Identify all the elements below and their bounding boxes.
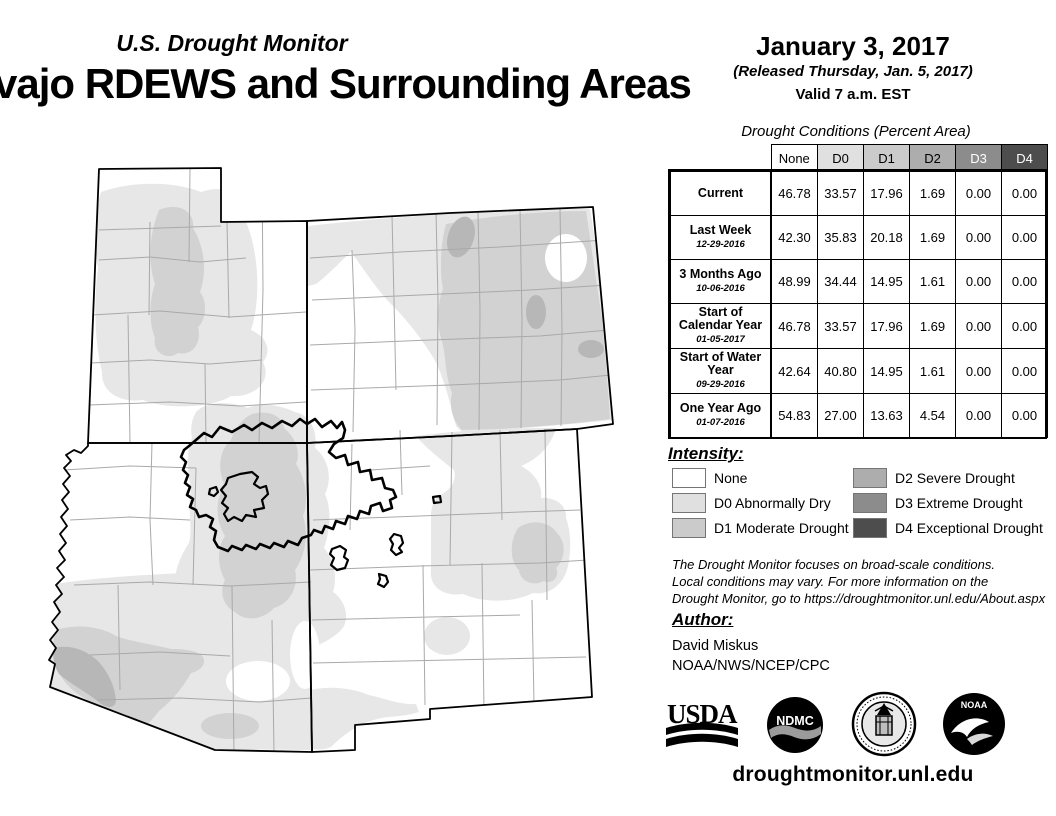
row-label: 3 Months Ago10-06-2016: [671, 260, 772, 304]
cell-value: 46.78: [771, 172, 818, 216]
none-hole-arizona-1: [226, 661, 290, 701]
table-row: Start of Calendar Year01-05-2017 46.78 3…: [671, 304, 1048, 349]
drought-monitor-page: U.S. Drought Monitor vajo RDEWS and Surr…: [0, 0, 1056, 816]
col-header-none: None: [771, 145, 818, 172]
cell-value: 14.95: [864, 349, 910, 394]
col-header-d3: D3: [956, 145, 1002, 172]
cell-value: 0.00: [1002, 172, 1048, 216]
legend-swatch-d3: [853, 493, 887, 513]
table-row: 3 Months Ago10-06-2016 48.99 34.44 14.95…: [671, 260, 1048, 304]
cell-value: 17.96: [864, 172, 910, 216]
author-org: NOAA/NWS/NCEP/CPC: [672, 658, 830, 674]
usda-logo: USDA: [666, 700, 738, 754]
cell-value: 20.18: [864, 216, 910, 260]
table-title: Drought Conditions (Percent Area): [672, 123, 1040, 140]
col-header-d0: D0: [818, 145, 864, 172]
table-header-row: None D0 D1 D2 D3 D4: [671, 145, 1048, 172]
d0-area-new-mexico-south: [424, 617, 470, 655]
page-title: vajo RDEWS and Surrounding Areas: [0, 60, 691, 108]
row-label: One Year Ago01-07-2016: [671, 394, 772, 438]
cell-value: 42.30: [771, 216, 818, 260]
col-header-d4: D4: [1002, 145, 1048, 172]
d0-area-bootheel: [298, 688, 419, 750]
cell-value: 4.54: [910, 394, 956, 438]
cell-value: 1.61: [910, 349, 956, 394]
cell-value: 1.69: [910, 304, 956, 349]
legend-item-d2: D2 Severe Drought: [853, 468, 1015, 488]
site-url: droughtmonitor.unl.edu: [672, 763, 1034, 787]
cell-value: 34.44: [818, 260, 864, 304]
legend-item-d1: D1 Moderate Drought: [672, 518, 849, 538]
valid-time: Valid 7 a.m. EST: [718, 86, 988, 103]
cell-value: 17.96: [864, 304, 910, 349]
cell-value: 40.80: [818, 349, 864, 394]
cell-value: 0.00: [1002, 216, 1048, 260]
legend-item-d3: D3 Extreme Drought: [853, 493, 1023, 513]
cell-value: 0.00: [956, 216, 1002, 260]
cell-value: 35.83: [818, 216, 864, 260]
drought-map: [28, 133, 676, 799]
cell-value: 13.63: [864, 394, 910, 438]
ndmc-logo: NDMC: [766, 696, 824, 754]
disclaimer-text: The Drought Monitor focuses on broad-sca…: [672, 556, 1056, 607]
table-row: Start of Water Year09-29-2016 42.64 40.8…: [671, 349, 1048, 394]
cell-value: 1.69: [910, 172, 956, 216]
table-row: Last Week12-29-2016 42.30 35.83 20.18 1.…: [671, 216, 1048, 260]
d2-area-colorado-center: [526, 295, 546, 329]
legend-swatch-d2: [853, 468, 887, 488]
cell-value: 0.00: [1002, 304, 1048, 349]
svg-text:NOAA: NOAA: [961, 700, 988, 710]
none-hole-arizona-2: [290, 621, 320, 689]
conditions-table: None D0 D1 D2 D3 D4 Current 46.78 33.57 …: [670, 144, 1048, 438]
legend-item-none: None: [672, 468, 747, 488]
cell-value: 33.57: [818, 172, 864, 216]
table-row: One Year Ago01-07-2016 54.83 27.00 13.63…: [671, 394, 1048, 438]
cell-value: 0.00: [956, 304, 1002, 349]
cell-value: 48.99: [771, 260, 818, 304]
cell-value: 54.83: [771, 394, 818, 438]
app-title: U.S. Drought Monitor: [0, 30, 464, 57]
legend-swatch-d0: [672, 493, 706, 513]
author-name: David Miskus: [672, 638, 758, 654]
svg-text:NDMC: NDMC: [776, 714, 814, 728]
cell-value: 27.00: [818, 394, 864, 438]
table-corner-cell: [671, 145, 772, 172]
released-date: (Released Thursday, Jan. 5, 2017): [700, 63, 1006, 80]
cell-value: 0.00: [956, 260, 1002, 304]
legend-item-d0: D0 Abnormally Dry: [672, 493, 831, 513]
col-header-d1: D1: [864, 145, 910, 172]
cell-value: 0.00: [1002, 260, 1048, 304]
legend-swatch-d4: [853, 518, 887, 538]
cell-value: 0.00: [956, 394, 1002, 438]
cell-value: 0.00: [1002, 349, 1048, 394]
table-row: Current 46.78 33.57 17.96 1.69 0.00 0.00: [671, 172, 1048, 216]
cell-value: 46.78: [771, 304, 818, 349]
legend-swatch-d1: [672, 518, 706, 538]
row-label: Start of Water Year09-29-2016: [671, 349, 772, 394]
cell-value: 1.61: [910, 260, 956, 304]
cell-value: 0.00: [1002, 394, 1048, 438]
d2-area-colorado-east: [578, 340, 604, 358]
legend-title: Intensity:: [668, 444, 744, 464]
row-label: Current: [671, 172, 772, 216]
d1-area-arizona-south-center: [201, 713, 259, 739]
legend-swatch-none: [672, 468, 706, 488]
cell-value: 42.64: [771, 349, 818, 394]
cell-value: 0.00: [956, 349, 1002, 394]
col-header-d2: D2: [910, 145, 956, 172]
row-label: Start of Calendar Year01-05-2017: [671, 304, 772, 349]
map-date: January 3, 2017: [718, 31, 988, 62]
drought-shading: [48, 168, 612, 756]
legend-item-d4: D4 Exceptional Drought: [853, 518, 1043, 538]
author-heading: Author:: [672, 610, 733, 630]
cell-value: 0.00: [956, 172, 1002, 216]
cell-value: 33.57: [818, 304, 864, 349]
department-of-commerce-seal: [851, 691, 917, 757]
row-label: Last Week12-29-2016: [671, 216, 772, 260]
noaa-logo: NOAA: [941, 691, 1007, 757]
cell-value: 14.95: [864, 260, 910, 304]
cell-value: 1.69: [910, 216, 956, 260]
